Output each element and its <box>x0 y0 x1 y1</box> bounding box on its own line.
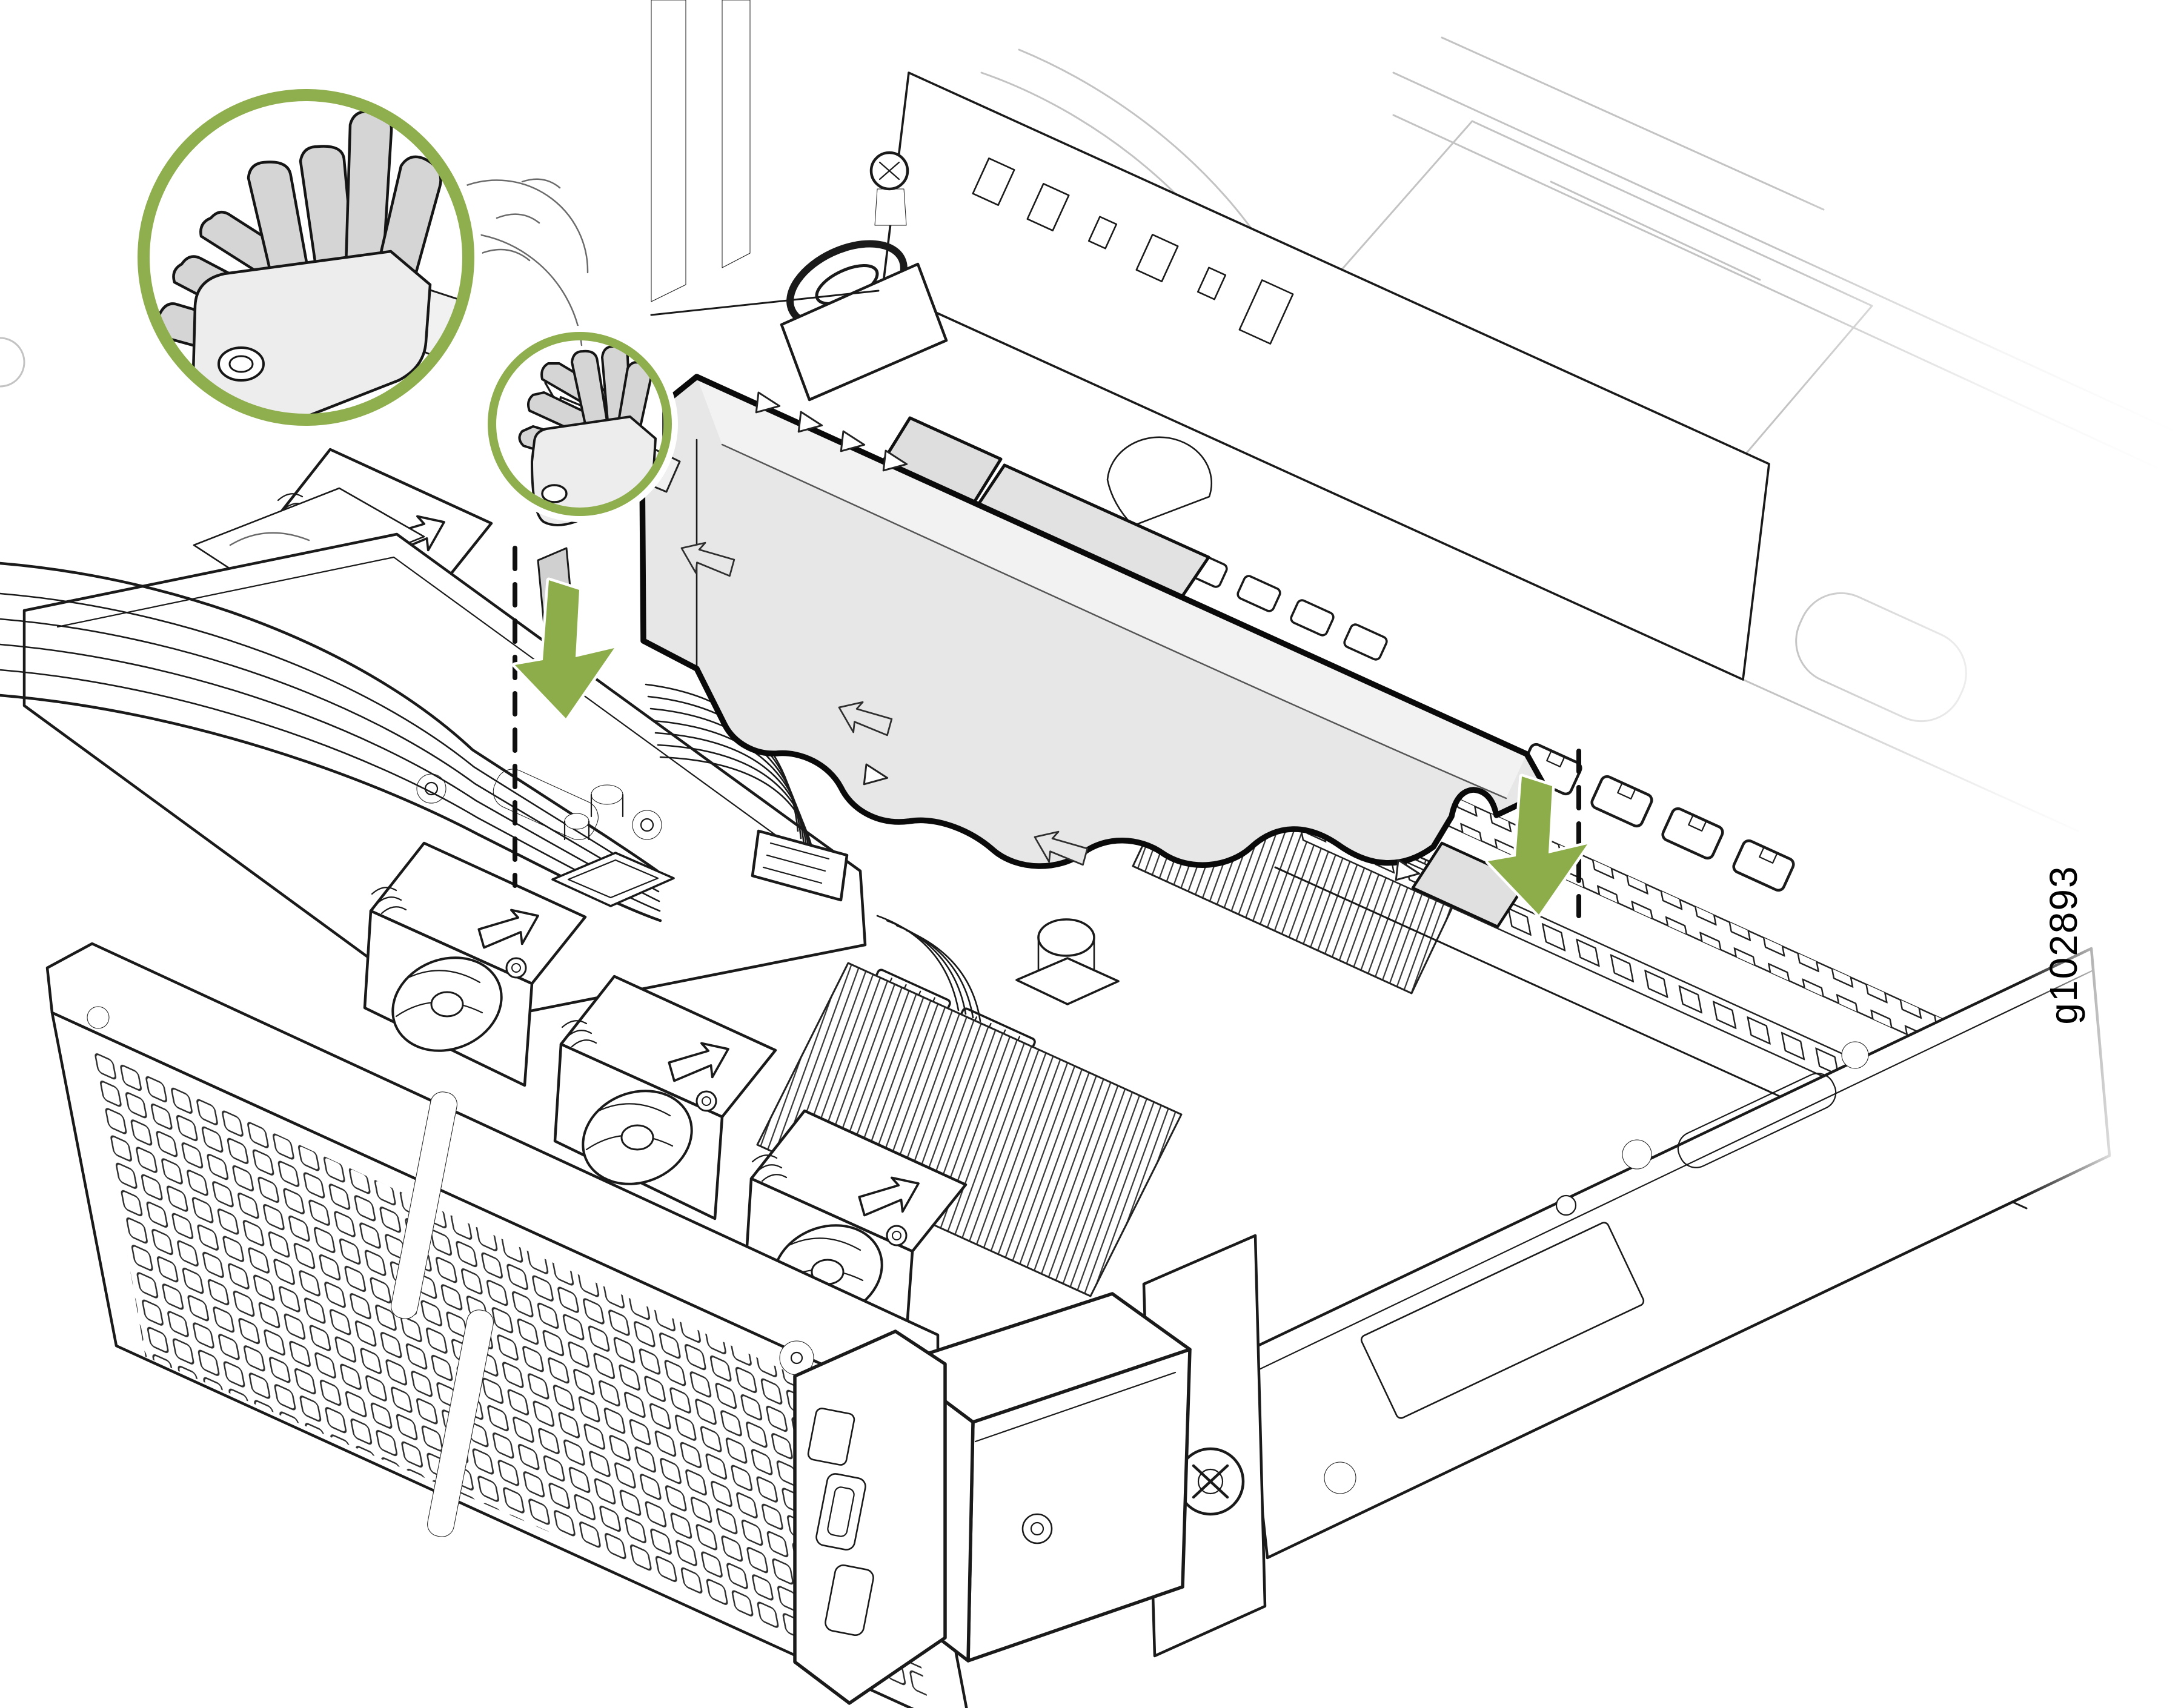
figure-id-label: g102893 <box>2042 865 2085 1024</box>
figure-illustration: g102893 <box>0 0 2181 1708</box>
fade-overlay-top-right <box>1787 0 2181 884</box>
screw-post <box>871 153 908 225</box>
hardware-install-diagram: g102893 <box>0 0 2181 1708</box>
chassis-side-wall <box>1245 948 2110 1558</box>
zoom-callout-large <box>134 85 479 436</box>
